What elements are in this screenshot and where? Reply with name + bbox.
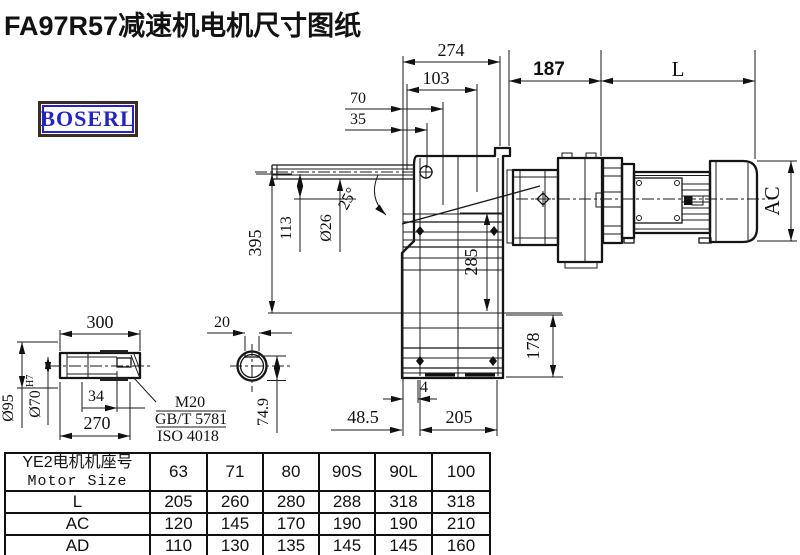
- table-cell: 145: [375, 535, 432, 555]
- motor-size-label-en: Motor Size: [6, 473, 149, 490]
- table-cell: 90L: [375, 453, 432, 491]
- table-cell: 260: [207, 491, 263, 513]
- table-cell: 318: [375, 491, 432, 513]
- table-cell: 145: [207, 513, 263, 535]
- thread-note-m20: M20: [175, 394, 205, 411]
- dim-103-label: 103: [423, 68, 450, 88]
- table-cell: 71: [207, 453, 263, 491]
- dim-4-label: 4: [420, 379, 428, 396]
- dim-AC-label: AC: [760, 186, 784, 215]
- table-cell: 210: [432, 513, 490, 535]
- dim-270-label: 270: [84, 413, 111, 433]
- dim-dia95-label: Ø95: [0, 394, 17, 422]
- table-cell: 288: [319, 491, 375, 513]
- table-cell: 135: [263, 535, 319, 555]
- dim-dia70-label: Ø70: [27, 390, 44, 418]
- table-cell: 160: [432, 535, 490, 555]
- table-row-AD: AD 110 130 135 145 145 160: [5, 535, 490, 555]
- table-cell: 190: [319, 513, 375, 535]
- shaft-detail-view: 300 Ø95 Ø70 H7 34 270: [0, 312, 227, 445]
- table-cell: 190: [375, 513, 432, 535]
- dim-113-label: 113: [278, 216, 295, 239]
- dim-L-label: L: [672, 57, 685, 81]
- table-cell: 100: [432, 453, 490, 491]
- motor-size-table: YE2电机机座号 Motor Size 63 71 80 90S 90L 100…: [4, 452, 491, 555]
- dim-34-label: 34: [88, 388, 104, 405]
- dim-300-label: 300: [87, 312, 114, 332]
- dim-20-label: 20: [214, 314, 230, 331]
- table-cell: 280: [263, 491, 319, 513]
- dim-187-label: 187: [533, 59, 565, 80]
- table-cell: 80: [263, 453, 319, 491]
- row-label: AC: [5, 513, 150, 535]
- dim-25deg-label: 25°: [335, 185, 361, 213]
- table-row-L: L 205 260 280 288 318 318: [5, 491, 490, 513]
- motor-size-label-cn: YE2电机机座号: [6, 454, 149, 472]
- gearbox-body: [268, 148, 562, 378]
- dim-285-label: 285: [461, 249, 481, 276]
- dim-dia70-tolerance-label: H7: [25, 375, 36, 387]
- table-row-AC: AC 120 145 170 190 190 210: [5, 513, 490, 535]
- dim-48_5-label: 48.5: [347, 407, 379, 427]
- table-cell: 130: [207, 535, 263, 555]
- table-cell: 318: [432, 491, 490, 513]
- input-shaft: [255, 165, 433, 179]
- table-cell: 120: [150, 513, 207, 535]
- dim-274-label: 274: [438, 40, 465, 60]
- table-cell: 170: [263, 513, 319, 535]
- dim-74_9-label: 74.9: [255, 398, 272, 426]
- r57-input-unit: [507, 153, 602, 268]
- table-header-motor-size: YE2电机机座号 Motor Size: [5, 453, 150, 491]
- table-cell: 110: [150, 535, 207, 555]
- dim-35-label: 35: [350, 111, 366, 128]
- table-header-row: YE2电机机座号 Motor Size 63 71 80 90S 90L 100: [5, 453, 490, 491]
- dim-395-label: 395: [245, 230, 265, 257]
- thread-note-gbt: GB/T 5781: [155, 411, 227, 428]
- table-cell: 205: [150, 491, 207, 513]
- row-label: L: [5, 491, 150, 513]
- table-cell: 63: [150, 453, 207, 491]
- row-label: AD: [5, 535, 150, 555]
- dim-dia26-label: Ø26: [318, 214, 335, 242]
- dim-70-label: 70: [350, 90, 366, 107]
- dim-178-label: 178: [523, 333, 543, 360]
- table-cell: 90S: [319, 453, 375, 491]
- drawing-sheet: FA97R57减速机电机尺寸图纸 BOSERL: [0, 0, 800, 555]
- thread-note-iso: ISO 4018: [157, 428, 219, 445]
- table-cell: 145: [319, 535, 375, 555]
- dim-205-label: 205: [446, 407, 473, 427]
